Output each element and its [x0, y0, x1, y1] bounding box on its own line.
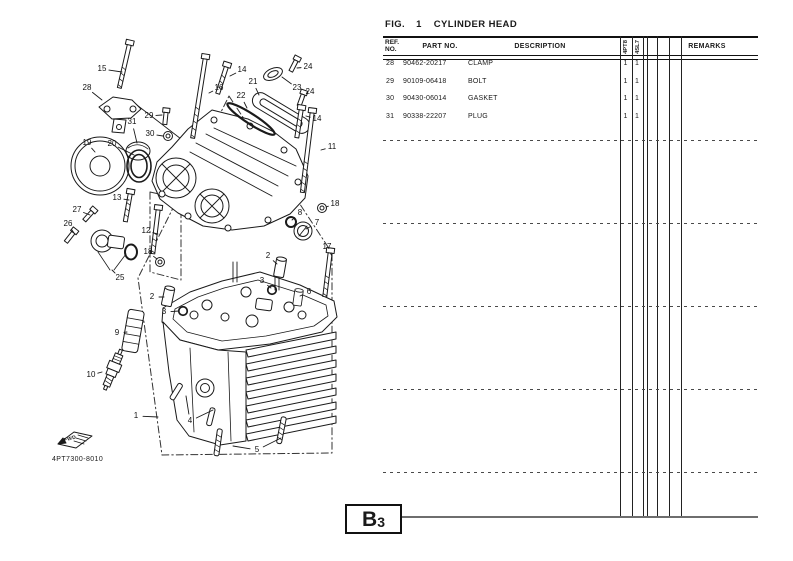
cell-ref: 30: [386, 95, 394, 102]
cell-part: 90430-06014: [403, 95, 446, 102]
col-header-desc: DESCRIPTION: [495, 43, 585, 50]
cell-qty-1: 1: [620, 78, 631, 85]
tube-9-shape: [121, 309, 144, 353]
cell-part: 90462-20217: [403, 60, 446, 67]
seal-20-shape: [127, 150, 151, 182]
cap-23-shape: [262, 65, 285, 83]
cap-19-shape: [71, 137, 129, 195]
cell-desc: PLUG: [468, 113, 488, 120]
page-title: CYLINDER HEAD: [434, 19, 517, 30]
cell-qty-1: 1: [620, 113, 631, 120]
cell-desc: BOLT: [468, 78, 487, 85]
cylinder-head-shape: [162, 262, 337, 445]
row-separator: [383, 306, 758, 308]
figure-title: FIG.1CYLINDER HEAD: [385, 19, 517, 30]
page-ref-main: B: [362, 509, 377, 530]
cell-desc: GASKET: [468, 95, 498, 102]
row-separator: [383, 223, 758, 225]
cell-qty-2: 1: [632, 113, 643, 120]
column-rule: [647, 36, 648, 518]
row-separator: [383, 472, 758, 474]
col-header-ref: REF.NO.: [385, 39, 399, 55]
cell-qty-2: 1: [632, 60, 643, 67]
col-header-model-2: 4SL7: [635, 40, 641, 54]
row-separator: [383, 140, 758, 142]
row-separator: [383, 389, 758, 391]
cell-ref: 28: [386, 60, 394, 67]
column-rule: [669, 36, 670, 518]
valve-25-shape: [91, 230, 137, 270]
page-ref-sub: 3: [377, 515, 385, 529]
cell-ref: 31: [386, 113, 394, 120]
valve-cover-shape: [152, 110, 308, 231]
table-top-rule: [383, 36, 758, 38]
column-rule: [681, 36, 682, 518]
cell-ref: 29: [386, 78, 394, 85]
drawing-code: 4PT7300-8010: [52, 456, 103, 463]
column-rule: [620, 36, 621, 518]
cap-7-shape: [294, 222, 312, 240]
col-header-part: PART NO.: [405, 43, 475, 50]
spark-plug-shape: [99, 347, 127, 392]
catalog-page: FWD 4PT7300-8010 12233456789101112131414…: [0, 0, 793, 561]
page-ref-connector: [399, 516, 758, 518]
cell-desc: CLAMP: [468, 60, 493, 67]
exploded-diagram: [30, 15, 395, 480]
col-header-model-1: 4PT8: [623, 40, 629, 54]
page-ref-box: B3: [345, 504, 402, 534]
cell-part: 90338-22207: [403, 113, 446, 120]
col-header-remarks: REMARKS: [683, 43, 731, 50]
column-rule: [657, 36, 658, 518]
cell-qty-2: 1: [632, 95, 643, 102]
clamp-shape: [99, 97, 141, 133]
cell-qty-1: 1: [620, 95, 631, 102]
column-rule: [632, 36, 633, 518]
cell-qty-2: 1: [632, 78, 643, 85]
cell-part: 90109-06418: [403, 78, 446, 85]
column-rule: [643, 36, 644, 518]
cell-qty-1: 1: [620, 60, 631, 67]
